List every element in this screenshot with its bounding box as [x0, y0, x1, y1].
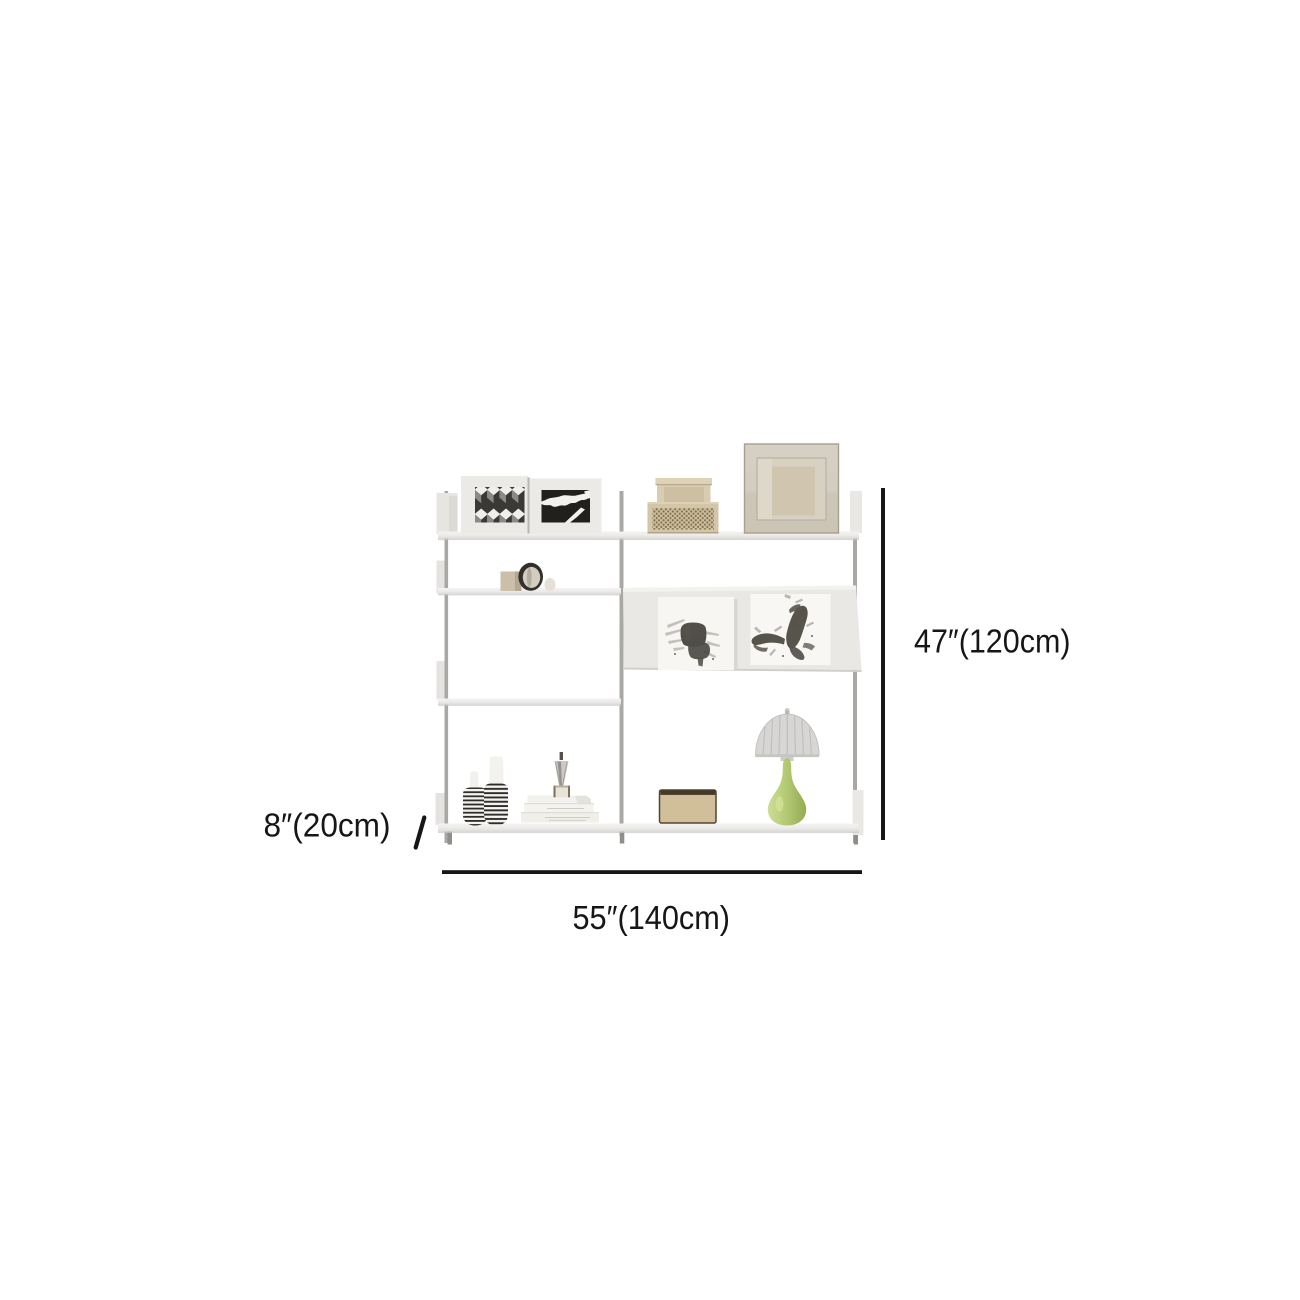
svg-text:55″(140cm): 55″(140cm) — [573, 900, 731, 937]
svg-text:47″(120cm): 47″(120cm) — [914, 623, 1071, 660]
svg-text:8″(20cm): 8″(20cm) — [264, 807, 391, 844]
